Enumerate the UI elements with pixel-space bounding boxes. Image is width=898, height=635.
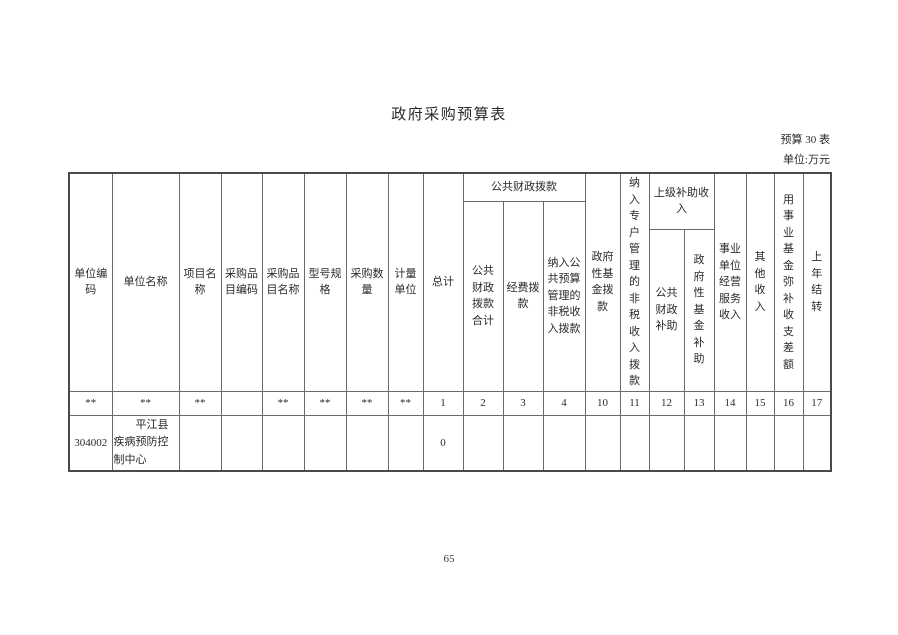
col-header-operating-income: 事业单位经营服务收入: [714, 173, 746, 391]
data-cell-item-name: [262, 415, 304, 471]
col-number-cell: **: [69, 391, 112, 415]
page-title: 政府采购预算表: [0, 103, 898, 124]
col-number-cell: 10: [585, 391, 620, 415]
col-header-funding-allocation: 经费拨款: [503, 201, 543, 391]
col-number-cell: **: [388, 391, 423, 415]
column-number-row: ** ** ** ** ** ** ** 1 2 3 4 10 11 12 13…: [69, 391, 831, 415]
data-cell-measure-unit: [388, 415, 423, 471]
data-cell-unit-name: 平江县疾病预防控制中心: [112, 415, 179, 471]
col-number-cell: 12: [649, 391, 684, 415]
col-number-cell: **: [179, 391, 221, 415]
data-cell-other-income: [746, 415, 774, 471]
col-number-cell: 11: [620, 391, 649, 415]
data-cell-gov-fund-subsidy: [684, 415, 714, 471]
col-number-cell: **: [304, 391, 346, 415]
col-header-fund-balance: 用事业基金弥补收支差额: [774, 173, 803, 391]
data-cell-public-finance-subsidy: [649, 415, 684, 471]
data-cell-total: 0: [423, 415, 463, 471]
col-number-cell: 1: [423, 391, 463, 415]
col-header-public-finance-total: 公共财政拨款合计: [463, 201, 503, 391]
col-header-total: 总计: [423, 173, 463, 391]
col-number-cell: [221, 391, 262, 415]
page-number: 65: [0, 553, 898, 565]
col-number-cell: **: [346, 391, 388, 415]
data-cell-nontax-special-account: [620, 415, 649, 471]
col-header-nontax-special-account: 纳入专户管理的非税收入拨款: [620, 173, 649, 391]
col-number-cell: **: [112, 391, 179, 415]
data-cell-fund-balance: [774, 415, 803, 471]
data-cell-project-name: [179, 415, 221, 471]
col-header-carryover: 上年结转: [803, 173, 831, 391]
unit-note: 单位:万元: [783, 151, 830, 167]
col-group-public-finance: 公共财政拨款: [463, 173, 585, 201]
data-cell-carryover: [803, 415, 831, 471]
data-cell-model-spec: [304, 415, 346, 471]
col-header-item-code: 采购品目编码: [221, 173, 262, 391]
col-number-cell: 15: [746, 391, 774, 415]
col-number-cell: 16: [774, 391, 803, 415]
col-number-cell: 14: [714, 391, 746, 415]
col-header-model-spec: 型号规格: [304, 173, 346, 391]
col-header-unit-code: 单位编码: [69, 173, 112, 391]
col-header-gov-fund: 政府性基金拨款: [585, 173, 620, 391]
data-cell-purchase-qty: [346, 415, 388, 471]
data-cell-funding-allocation: [503, 415, 543, 471]
data-cell-public-finance-total: [463, 415, 503, 471]
data-cell-operating-income: [714, 415, 746, 471]
col-number-cell: 17: [803, 391, 831, 415]
col-number-cell: 3: [503, 391, 543, 415]
col-header-public-finance-subsidy: 公共财政补助: [649, 229, 684, 391]
data-cell-nontax-public-budget: [543, 415, 585, 471]
col-header-nontax-public-budget: 纳入公共预算管理的非税收入拨款: [543, 201, 585, 391]
col-header-item-name: 采购品目名称: [262, 173, 304, 391]
col-number-cell: 2: [463, 391, 503, 415]
data-cell-item-code: [221, 415, 262, 471]
col-header-unit-name: 单位名称: [112, 173, 179, 391]
data-cell-unit-code: 304002: [69, 415, 112, 471]
col-header-other-income: 其他收入: [746, 173, 774, 391]
col-header-gov-fund-subsidy: 政府性基金补助: [684, 229, 714, 391]
col-number-cell: 4: [543, 391, 585, 415]
data-cell-gov-fund: [585, 415, 620, 471]
budget-table-ref: 预算 30 表: [781, 131, 831, 147]
col-group-superior-subsidy: 上级补助收入: [649, 173, 714, 229]
col-number-cell: 13: [684, 391, 714, 415]
col-header-measure-unit: 计量单位: [388, 173, 423, 391]
col-number-cell: **: [262, 391, 304, 415]
table-row: 304002 平江县疾病预防控制中心 0: [69, 415, 831, 471]
procurement-budget-table: 单位编码 单位名称 项目名称 采购品目编码 采购品目名称 型号规格 采购数量 计…: [68, 172, 832, 472]
col-header-purchase-qty: 采购数量: [346, 173, 388, 391]
col-header-project-name: 项目名称: [179, 173, 221, 391]
